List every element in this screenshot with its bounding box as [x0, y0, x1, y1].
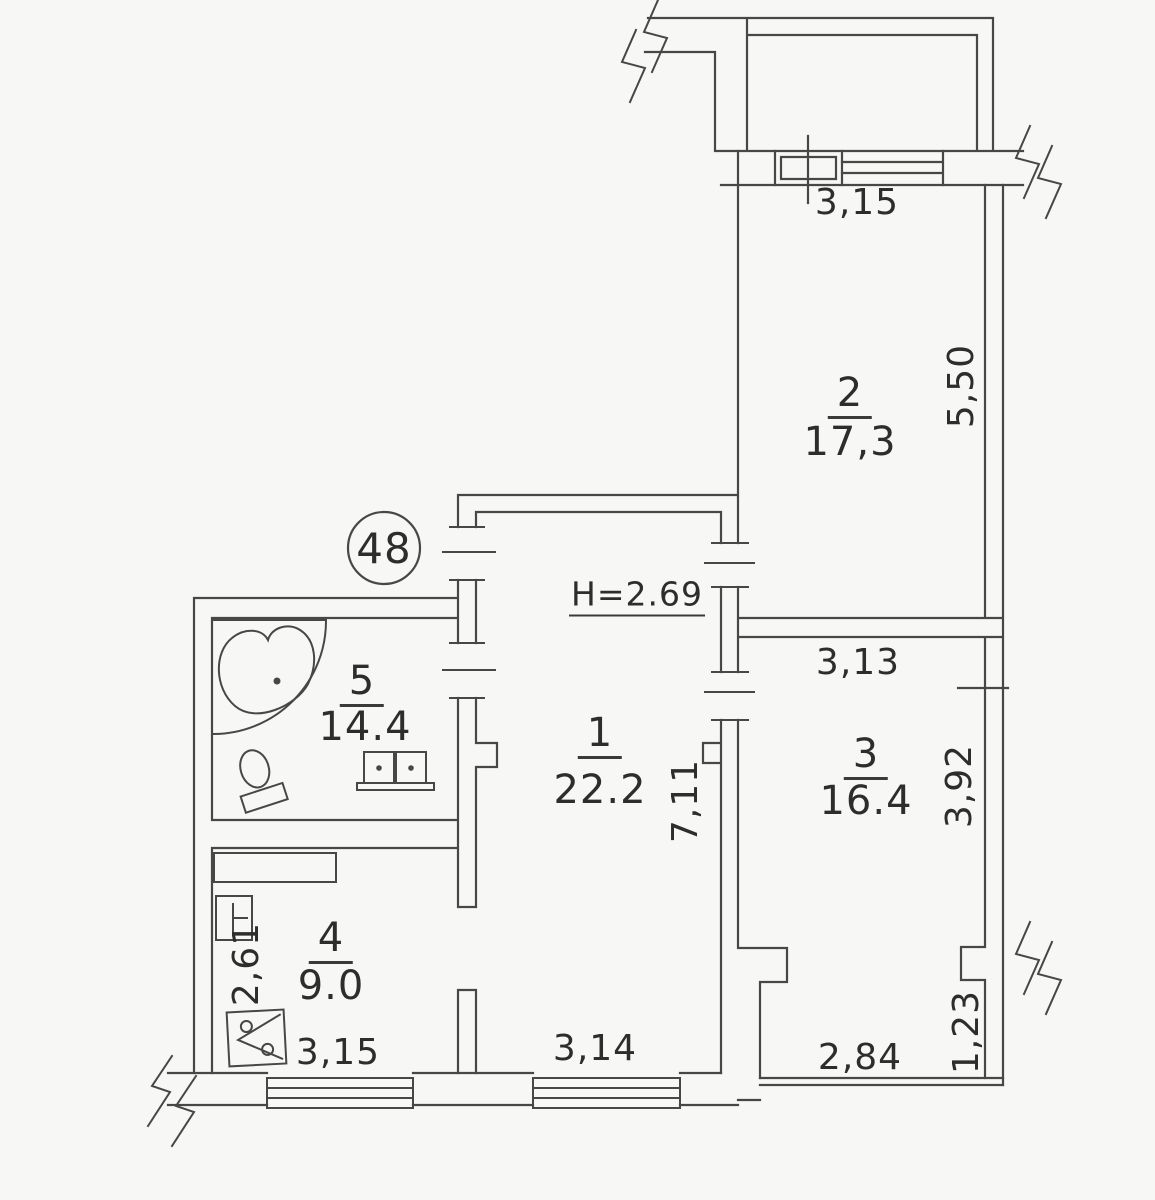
room-4-number: 4 [309, 918, 353, 964]
room-3-number: 3 [844, 734, 888, 780]
balcony-walls [645, 18, 1023, 203]
kitchen-window [267, 1078, 413, 1108]
dim-room2-depth: 5,50 [944, 344, 980, 428]
bathtub-icon [214, 620, 326, 734]
living-room-window [533, 1078, 680, 1108]
floorplan-page: 48 H=2.69 1 22.2 2 17,3 3 16.4 4 9.0 5 1… [0, 0, 1155, 1200]
break-line-top-right [1016, 126, 1061, 218]
dim-room3-width: 3,13 [816, 645, 900, 681]
ceiling-height-label: H=2.69 [569, 578, 705, 617]
dim-room1-width: 3,14 [553, 1031, 637, 1067]
bathroom-sink-icon [357, 752, 434, 790]
dim-room3-depth: 3,92 [942, 744, 978, 828]
kitchen-sink-icon [227, 1010, 287, 1067]
balcony-window [842, 151, 943, 185]
apartment-number: 48 [356, 528, 411, 570]
room-2-area: 17,3 [803, 422, 896, 462]
break-line-bottom-right [1016, 922, 1061, 1014]
room-1-number: 1 [578, 713, 622, 759]
room-5-number: 5 [340, 661, 384, 707]
room-4-area: 9.0 [298, 966, 365, 1006]
toilet-icon [228, 744, 288, 813]
dim-room1-depth: 7,11 [668, 759, 704, 843]
room-2-number: 2 [828, 373, 872, 419]
dim-balcony-window-width: 3,15 [815, 185, 899, 221]
dim-kitchen-width: 3,15 [296, 1035, 380, 1071]
kitchen-counter [214, 853, 336, 882]
dim-kitchen-depth: 2,61 [229, 922, 265, 1006]
room-5-area: 14.4 [318, 707, 411, 747]
room-3-area: 16.4 [819, 781, 912, 821]
break-line-bottom-left [148, 1056, 196, 1146]
dim-bottom-right-wall: 1,23 [949, 990, 985, 1074]
dim-bottom-extension-width: 2,84 [818, 1040, 902, 1076]
room-1-area: 22.2 [553, 770, 646, 810]
door-openings [443, 527, 754, 720]
